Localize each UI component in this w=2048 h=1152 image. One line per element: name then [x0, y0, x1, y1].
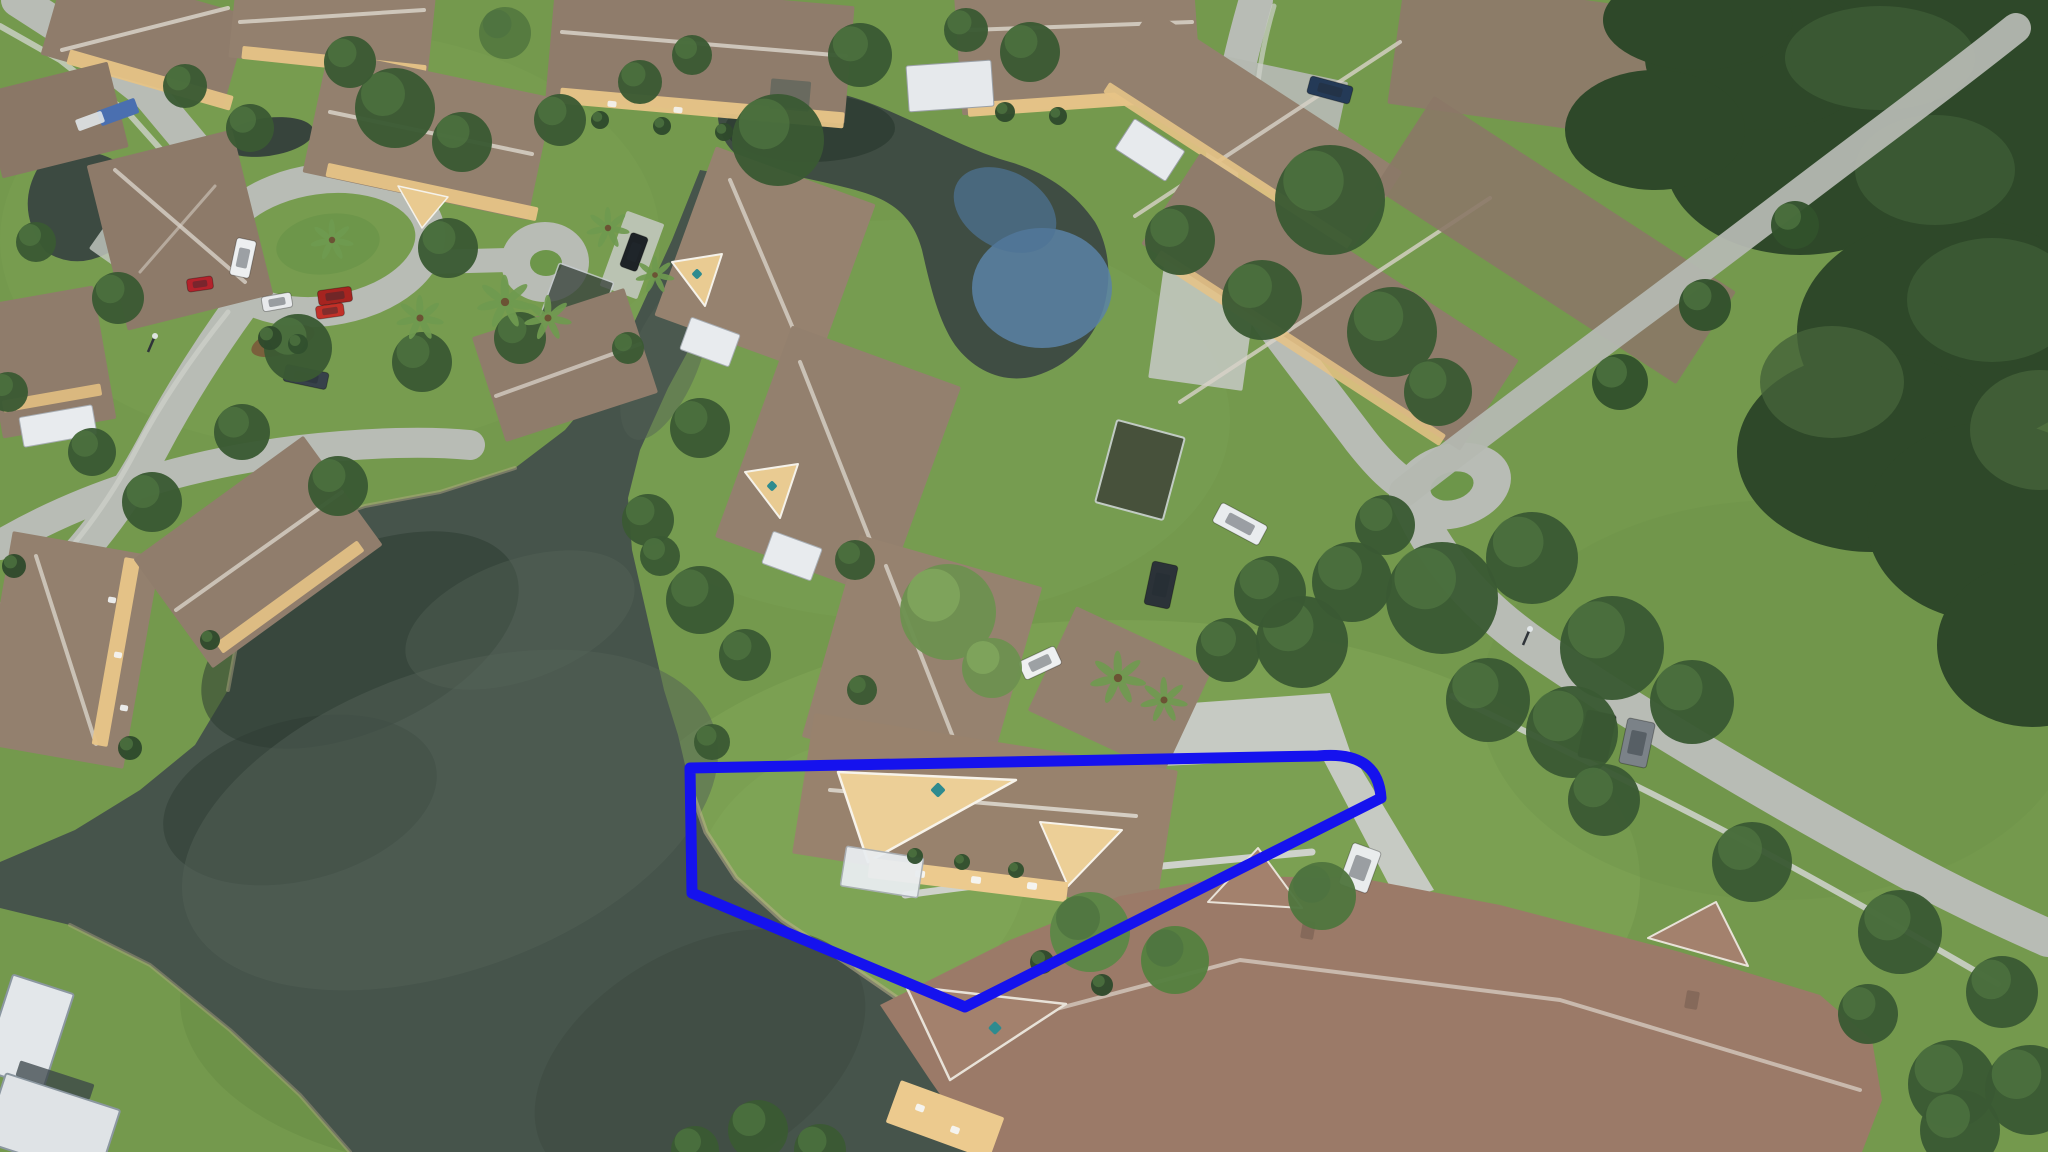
bush	[849, 677, 866, 694]
palm-tree	[329, 237, 335, 243]
tree	[626, 497, 655, 526]
bush	[997, 103, 1008, 114]
aerial-photo	[0, 0, 2048, 1152]
tree	[328, 39, 357, 68]
tree	[739, 99, 790, 150]
willow-tree	[967, 641, 1000, 674]
tree	[675, 401, 708, 434]
tree	[621, 62, 645, 86]
tree	[1573, 768, 1613, 808]
tree	[697, 726, 717, 746]
tree	[947, 10, 971, 34]
tree	[72, 430, 98, 456]
bush	[202, 631, 213, 642]
tree	[833, 26, 868, 61]
tree	[19, 224, 41, 246]
bush	[955, 855, 964, 864]
bush	[4, 555, 17, 568]
tree	[1533, 691, 1584, 742]
tree	[1915, 1044, 1963, 1092]
tree	[1843, 987, 1876, 1020]
tree	[675, 37, 697, 59]
tree	[733, 1103, 766, 1136]
bush	[1009, 863, 1018, 872]
tree	[1493, 517, 1544, 568]
tree	[1056, 896, 1100, 940]
willow-tree	[907, 569, 960, 622]
tree	[1228, 264, 1272, 308]
tree	[230, 106, 256, 132]
tree	[1150, 209, 1189, 248]
window	[607, 101, 616, 108]
bush	[1093, 975, 1105, 987]
tree	[538, 97, 567, 126]
street-lamp	[152, 333, 158, 339]
window	[971, 876, 982, 884]
palm-tree	[544, 314, 551, 321]
tree	[1596, 357, 1627, 388]
tree	[1864, 894, 1910, 940]
tree	[1146, 929, 1183, 966]
palm-tree	[1114, 674, 1122, 682]
palm-tree	[1160, 696, 1167, 703]
forest-highlight	[1760, 326, 1904, 438]
bush	[838, 542, 860, 564]
tree	[1718, 826, 1762, 870]
tree	[397, 335, 430, 368]
window	[1027, 882, 1038, 890]
tree	[671, 569, 708, 606]
bush	[120, 737, 133, 750]
tree	[1992, 1050, 2042, 1100]
tree	[1318, 546, 1362, 590]
palm-tree	[652, 272, 658, 278]
tree	[1971, 960, 2011, 1000]
window	[673, 107, 682, 114]
bush	[716, 124, 726, 134]
tree	[1293, 865, 1330, 902]
tree	[1568, 601, 1625, 658]
tree	[1775, 203, 1801, 229]
forest	[1565, 70, 1745, 190]
aerial-photo-stage: Aerial drone photo of a townhome communi…	[0, 0, 2048, 1152]
street-lamp	[1527, 626, 1533, 632]
tree	[1409, 361, 1446, 398]
tree	[96, 275, 125, 304]
palm-tree	[501, 298, 509, 306]
palm-tree	[605, 225, 611, 231]
bush	[908, 849, 917, 858]
tree	[1239, 560, 1279, 600]
tree	[313, 459, 346, 492]
bush	[260, 327, 273, 340]
bush	[592, 112, 602, 122]
bush	[654, 118, 664, 128]
tree	[1005, 25, 1038, 58]
palm-tree	[416, 314, 423, 321]
tree	[423, 221, 456, 254]
tree	[166, 66, 190, 90]
tree	[1452, 662, 1498, 708]
tree	[437, 115, 470, 148]
tree	[614, 334, 632, 352]
tree	[127, 475, 160, 508]
bush	[290, 335, 301, 346]
tree	[483, 10, 512, 39]
tree	[1926, 1094, 1970, 1138]
tree	[218, 407, 249, 438]
tree	[1394, 548, 1456, 610]
tree	[1656, 664, 1702, 710]
tree	[1201, 621, 1236, 656]
tree	[1354, 292, 1404, 342]
bush	[1050, 108, 1060, 118]
tree	[1283, 151, 1344, 212]
tree	[1360, 498, 1393, 531]
tree	[1683, 282, 1712, 311]
tree	[643, 538, 665, 560]
scene-layers	[0, 0, 2048, 1152]
tree	[723, 632, 752, 661]
screened-lanai	[906, 60, 994, 112]
